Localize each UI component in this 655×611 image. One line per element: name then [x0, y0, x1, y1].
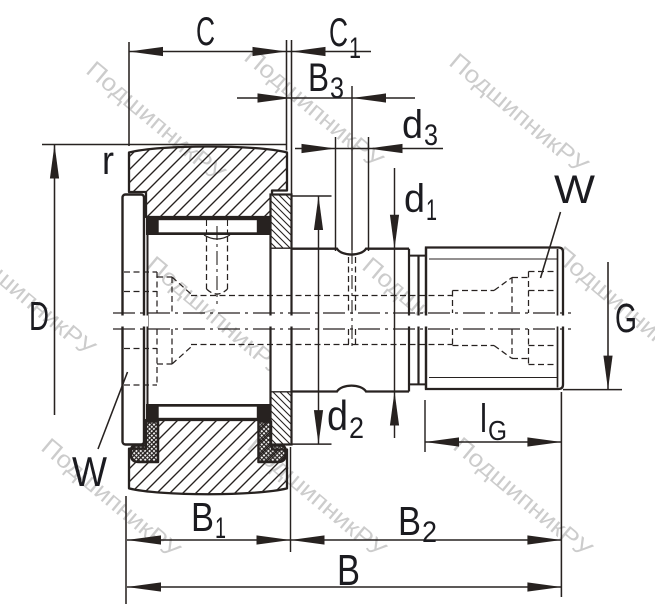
svg-text:1: 1 — [349, 32, 361, 65]
svg-text:1: 1 — [215, 512, 226, 545]
svg-text:C: C — [329, 11, 348, 55]
svg-text:B: B — [191, 494, 214, 540]
svg-text:r: r — [102, 139, 114, 183]
svg-text:B: B — [398, 498, 421, 544]
svg-text:B: B — [308, 56, 329, 100]
svg-text:B: B — [337, 546, 360, 595]
svg-text:l: l — [480, 397, 487, 441]
svg-text:W: W — [554, 168, 595, 212]
svg-text:d: d — [402, 103, 423, 147]
svg-text:W: W — [72, 448, 107, 495]
svg-text:3: 3 — [424, 119, 438, 152]
svg-text:G: G — [615, 295, 637, 341]
svg-text:D: D — [29, 293, 49, 339]
svg-text:3: 3 — [330, 72, 344, 105]
svg-text:2: 2 — [349, 412, 364, 445]
svg-text:d: d — [404, 177, 425, 221]
svg-text:C: C — [196, 10, 215, 54]
svg-text:1: 1 — [426, 194, 437, 227]
svg-text:2: 2 — [422, 516, 437, 549]
svg-text:G: G — [488, 415, 507, 446]
svg-text:d: d — [327, 392, 348, 439]
